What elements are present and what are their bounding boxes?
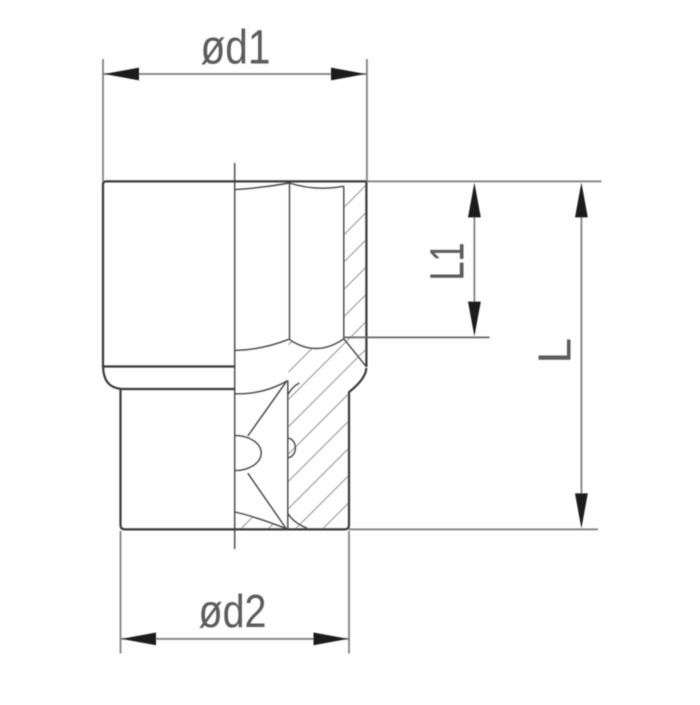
svg-text:ød1: ød1 — [201, 22, 271, 75]
svg-text:ød2: ød2 — [199, 585, 267, 637]
svg-text:L1: L1 — [421, 243, 475, 281]
svg-text:L: L — [529, 338, 581, 364]
